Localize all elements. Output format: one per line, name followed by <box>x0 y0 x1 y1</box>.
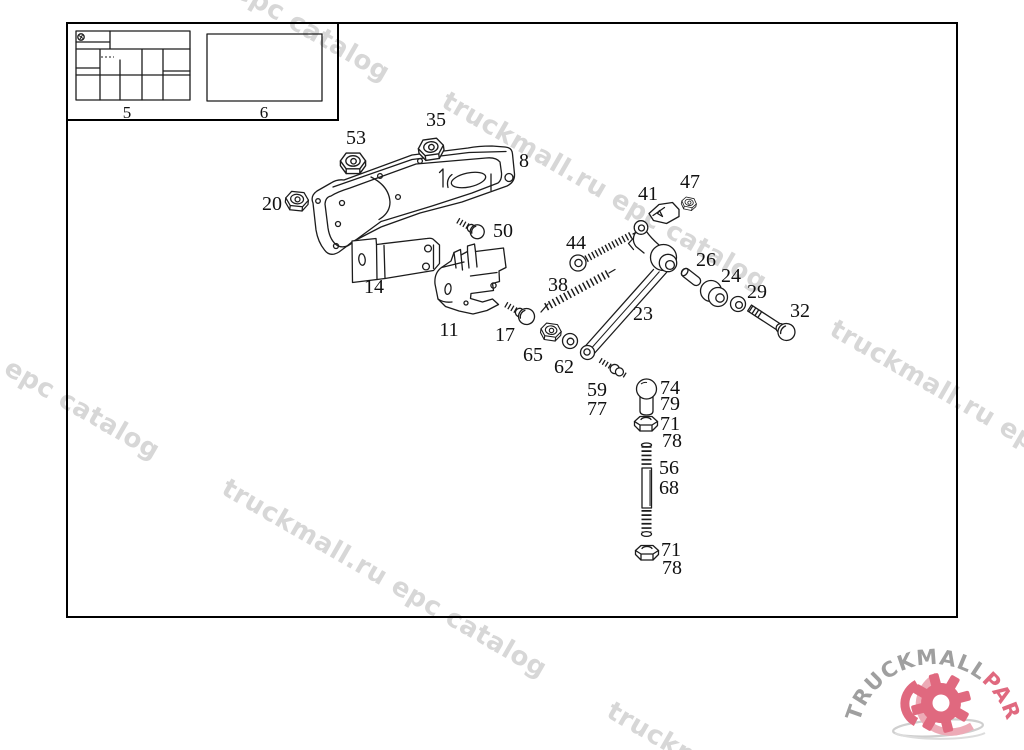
part-label-56: 56 <box>659 457 679 479</box>
part-label-77: 77 <box>587 398 607 420</box>
part-label-68: 68 <box>659 477 679 499</box>
diagram-frame <box>67 23 957 617</box>
part-62-washer <box>563 334 578 349</box>
parts-catalog-diagram-page: truckmall.ru epc catalog truckmall.ru ep… <box>0 0 1024 750</box>
part-label-53: 53 <box>346 127 366 149</box>
part-label-78b: 78 <box>662 557 682 579</box>
part-label-24: 24 <box>721 265 741 287</box>
part-5-type-plate <box>76 31 190 100</box>
part-label-11: 11 <box>439 319 458 341</box>
part-47-nut <box>680 196 697 211</box>
part-71-nut-lower <box>636 546 659 561</box>
watermarks: truckmall.ru epc catalog truckmall.ru ep… <box>0 0 1024 750</box>
part-label-26: 26 <box>696 249 716 271</box>
part-label-14: 14 <box>364 276 384 298</box>
part-20-hex-nut <box>285 191 310 212</box>
main-border-box <box>67 23 957 617</box>
part-label-8: 8 <box>519 150 529 172</box>
part-50-bolt <box>454 214 487 241</box>
part-label-78a: 78 <box>662 430 682 452</box>
watermark-text: truckmall.ru epc catalog <box>217 473 553 684</box>
part-label-65: 65 <box>523 344 543 366</box>
part-56-threaded-stud <box>642 443 652 536</box>
part-label-17: 17 <box>495 324 515 346</box>
watermark-text: truckmall.ru epc catalog <box>602 696 938 750</box>
part-label-38: 38 <box>548 274 568 296</box>
part-label-20: 20 <box>262 193 282 215</box>
part-label-47: 47 <box>680 171 700 193</box>
part-label-6: 6 <box>260 103 269 122</box>
part-label-44: 44 <box>566 232 586 254</box>
part-label-62: 62 <box>554 356 574 378</box>
part-label-35: 35 <box>426 109 446 131</box>
exploded-parts-diagram: truckmall.ru epc catalog truckmall.ru ep… <box>0 0 1024 750</box>
part-label-32: 32 <box>790 300 810 322</box>
watermark-text: truckmall.ru epc catalog <box>0 255 165 466</box>
part-label-50: 50 <box>493 220 513 242</box>
part-17-bolt <box>502 298 538 328</box>
part-29-washer <box>731 297 746 312</box>
part-label-5: 5 <box>123 103 132 122</box>
brand-logo: TRUCKMALLPARTS <box>0 0 1024 740</box>
part-label-79: 79 <box>660 393 680 415</box>
part-59-stud <box>598 356 628 379</box>
part-74-ball-pin <box>637 379 657 415</box>
part-65-flange-nut <box>540 322 563 341</box>
part-11-stamped-bracket <box>435 244 506 314</box>
part-label-29: 29 <box>747 281 767 303</box>
watermark-text: truckmall.ru epc catalog <box>825 314 1024 525</box>
part-label-41: 41 <box>638 183 658 205</box>
part-71-nut-upper <box>635 417 658 432</box>
part-53-hex-nut <box>340 153 365 173</box>
part-label-23: 23 <box>633 303 653 325</box>
